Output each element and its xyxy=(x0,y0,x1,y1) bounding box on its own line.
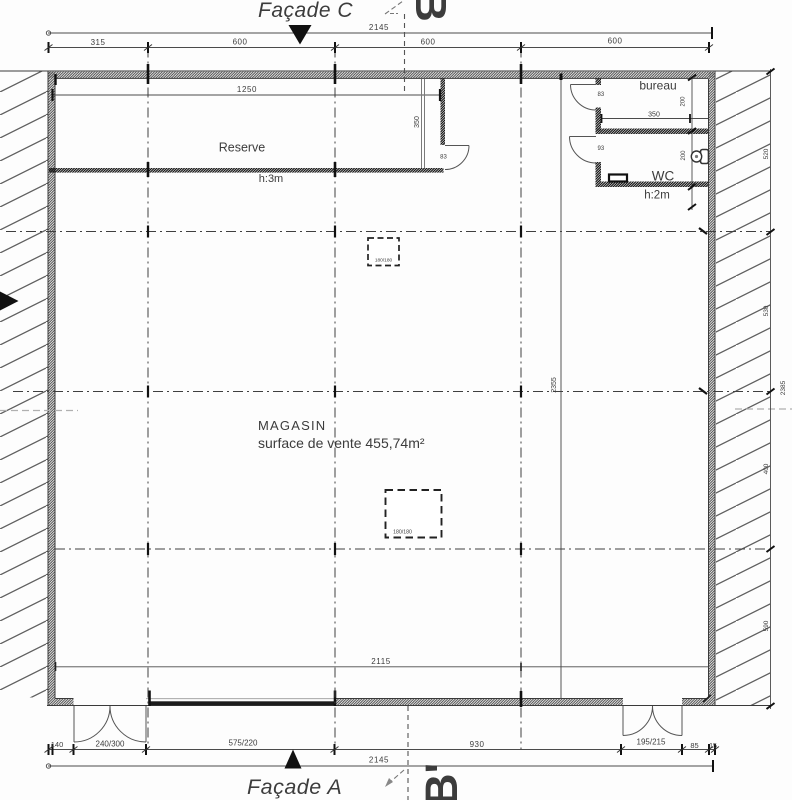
svg-text:590: 590 xyxy=(763,620,770,631)
svg-text:520: 520 xyxy=(763,148,770,159)
svg-text:Façade C: Façade C xyxy=(258,0,353,22)
svg-text:600: 600 xyxy=(421,38,436,47)
svg-text:600: 600 xyxy=(233,38,248,47)
svg-text:350: 350 xyxy=(414,116,421,128)
svg-text:2385: 2385 xyxy=(780,380,787,395)
svg-text:195/215: 195/215 xyxy=(637,738,666,747)
svg-text:315: 315 xyxy=(91,38,106,47)
svg-text:B': B' xyxy=(416,763,467,800)
svg-text:2145: 2145 xyxy=(369,23,389,32)
svg-text:400: 400 xyxy=(763,463,770,474)
svg-text:180/180: 180/180 xyxy=(375,258,393,264)
svg-text:200: 200 xyxy=(681,150,687,161)
svg-text:2115: 2115 xyxy=(371,657,391,666)
svg-text:350: 350 xyxy=(648,112,660,119)
svg-text:1250: 1250 xyxy=(237,85,257,94)
svg-text:15: 15 xyxy=(709,743,717,750)
svg-text:600: 600 xyxy=(608,37,623,46)
svg-text:2355: 2355 xyxy=(551,377,558,393)
svg-text:Reserve: Reserve xyxy=(219,141,266,155)
svg-text:930: 930 xyxy=(470,740,485,749)
svg-text:2145: 2145 xyxy=(369,756,389,765)
svg-text:530: 530 xyxy=(763,305,770,316)
svg-text:Façade A: Façade A xyxy=(247,775,342,799)
svg-text:h:3m: h:3m xyxy=(259,173,283,185)
svg-text:93: 93 xyxy=(598,146,605,152)
svg-text:83: 83 xyxy=(440,155,447,161)
svg-text:83: 83 xyxy=(598,92,605,98)
svg-text:B: B xyxy=(406,0,455,22)
svg-text:180/180: 180/180 xyxy=(393,530,412,536)
svg-text:WC: WC xyxy=(652,169,675,184)
svg-text:240/300: 240/300 xyxy=(96,740,125,749)
svg-text:MAGASIN: MAGASIN xyxy=(258,418,326,433)
svg-text:surface de vente 455,74m²: surface de vente 455,74m² xyxy=(258,435,425,451)
svg-text:85: 85 xyxy=(690,741,698,750)
svg-text:140: 140 xyxy=(51,740,64,749)
svg-text:200: 200 xyxy=(681,96,687,107)
svg-text:bureau: bureau xyxy=(639,79,676,93)
svg-text:h:2m: h:2m xyxy=(644,190,670,202)
svg-text:575/220: 575/220 xyxy=(229,739,258,748)
